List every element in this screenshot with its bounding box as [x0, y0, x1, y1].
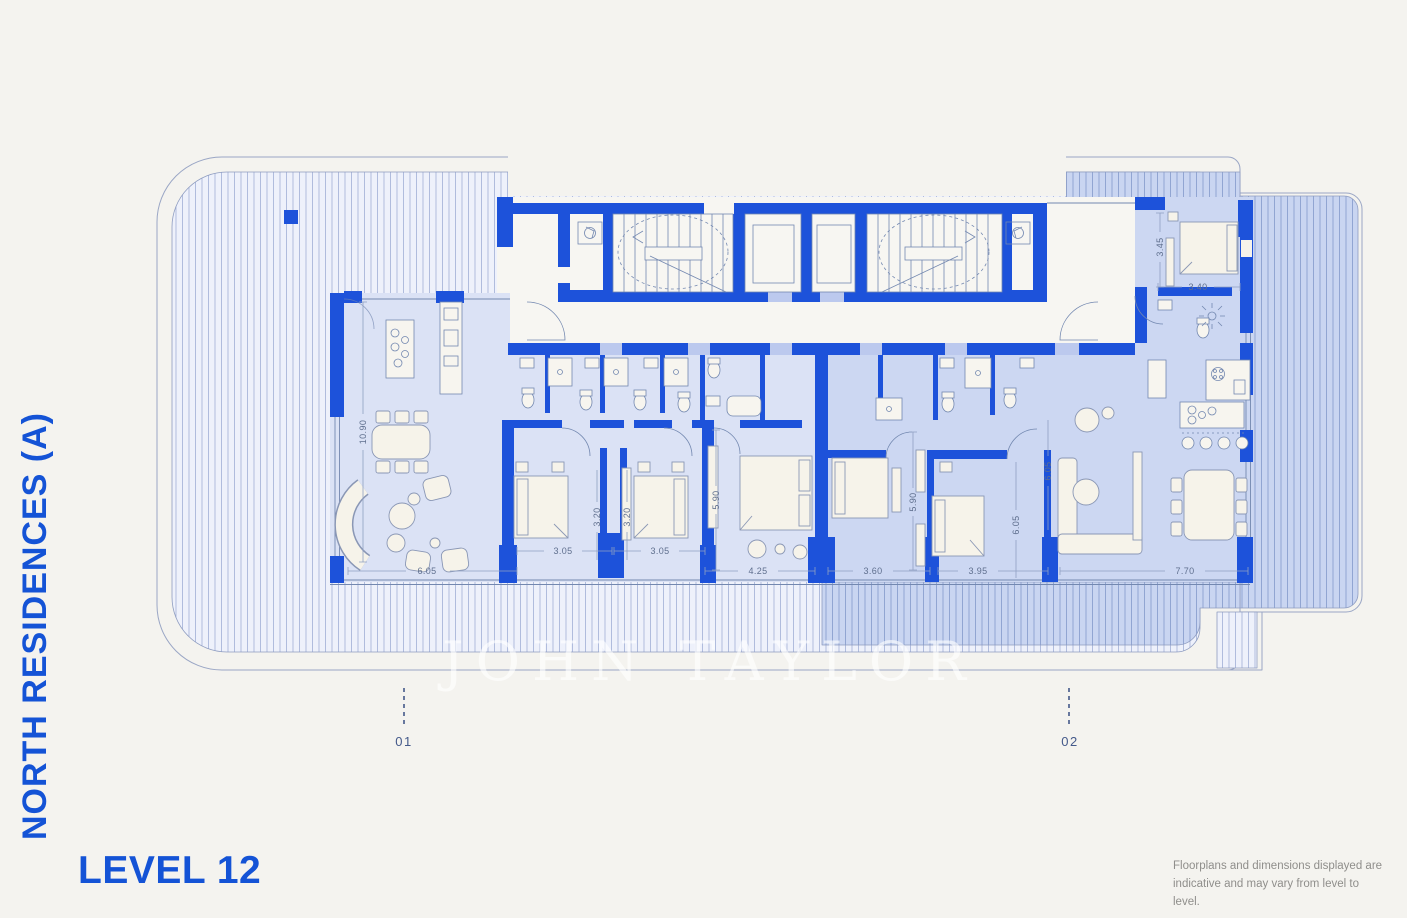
disclaimer: Floorplans and dimensions displayed are … — [1173, 858, 1383, 911]
dim-h-305b: 3.05 — [650, 546, 669, 556]
dining-table-unit01 — [372, 411, 430, 473]
stairwell-east — [867, 214, 1002, 292]
terrace-deck-dark-bottom — [822, 582, 1240, 645]
dim-h-305a: 3.05 — [553, 546, 572, 556]
elevator-shafts — [745, 214, 855, 292]
dining-table-unit02 — [1171, 470, 1247, 540]
core-roof-gap — [508, 150, 1066, 196]
dim-v-1090: 10.90 — [358, 420, 368, 445]
floorplan-drawing: 6.05 3.05 3.05 4.25 3.60 3.95 7.70 3.40 … — [0, 0, 1407, 918]
unit-markers: 01 02 — [395, 688, 1078, 749]
dim-h-360: 3.60 — [863, 566, 882, 576]
dim-v-590b: 5.90 — [908, 492, 918, 511]
dim-h-340: 3.40 — [1188, 282, 1207, 292]
dim-v-605b: 6.05 — [1043, 461, 1053, 480]
dim-h-605: 6.05 — [417, 566, 436, 576]
dim-v-320a: 3.20 — [592, 507, 602, 526]
floorplan-page: 6.05 3.05 3.05 4.25 3.60 3.95 7.70 3.40 … — [0, 0, 1407, 918]
terrace-step-deck — [1217, 612, 1257, 668]
unit-marker-01: 01 — [395, 734, 412, 749]
stairwell-west — [613, 214, 733, 292]
dim-h-425: 4.25 — [748, 566, 767, 576]
dim-v-320b: 3.20 — [622, 507, 632, 526]
project-title: NORTH RESIDENCES (A) — [16, 412, 55, 840]
disclaimer-line-2: indicative and may vary from level to le… — [1173, 876, 1383, 912]
terrace-deck-dark-right — [1240, 196, 1358, 608]
disclaimer-line-1: Floorplans and dimensions displayed are — [1173, 858, 1383, 876]
dim-v-605a: 6.05 — [1011, 515, 1021, 534]
unit-marker-02: 02 — [1061, 734, 1078, 749]
dim-v-590a: 5.90 — [711, 490, 721, 509]
terrace-column — [284, 210, 298, 224]
level-label: LEVEL 12 — [78, 849, 261, 893]
dim-h-395: 3.95 — [968, 566, 987, 576]
dim-v-345: 3.45 — [1155, 237, 1165, 256]
dim-h-770: 7.70 — [1175, 566, 1194, 576]
